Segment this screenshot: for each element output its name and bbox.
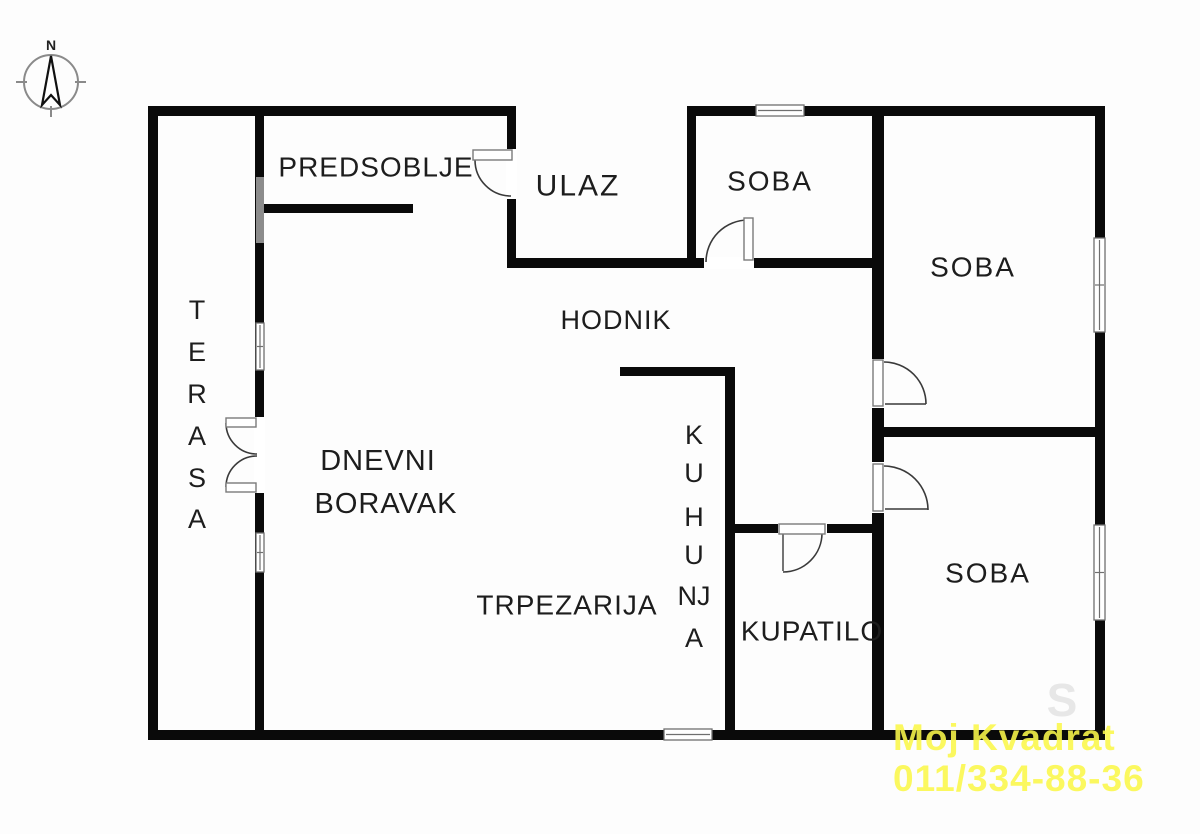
soba1-top-window (756, 105, 804, 116)
kitchen-right-wall (725, 367, 735, 740)
soba1-door (704, 218, 754, 269)
soba2-right-window (1094, 238, 1105, 332)
kitchen-top-wall (620, 367, 734, 376)
balcony-door-upper-leaf (226, 418, 256, 427)
soba3-door-swing-arc (884, 466, 928, 510)
label-kuhinja-letter: H (684, 502, 704, 532)
label-terasa-letter: A (188, 421, 206, 451)
terrace-window-lower (256, 533, 264, 572)
label-terasa-letter: E (188, 337, 206, 367)
label-dnevni: DNEVNI (320, 445, 436, 477)
bathroom-door (778, 523, 827, 572)
terrace-window-upper (256, 177, 264, 243)
entry-door (473, 149, 517, 199)
bathroom-door-leaf (779, 524, 825, 534)
label-terasa-letter: T (189, 295, 206, 325)
label-terasa-letter: S (188, 463, 206, 493)
soba2-door-leaf (873, 360, 883, 406)
label-kupatilo: KUPATILO (741, 616, 883, 647)
label-soba-2: SOBA (930, 252, 1016, 283)
floor-plan: SPREDSOBLJEULAZSOBASOBAHODNIKDNEVNIBORAV… (0, 0, 1200, 834)
left-outer-wall (148, 106, 158, 740)
label-terasa: TERASA (187, 295, 207, 534)
label-boravak: BORAVAK (315, 488, 458, 520)
watermark: Moj Kvadrat 011/334-88-36 (893, 717, 1145, 799)
watermark-brand: Moj Kvadrat (893, 717, 1145, 758)
predsoblje-wall (262, 204, 413, 213)
soba3-right-window (1094, 525, 1105, 620)
kitchen-bottom-window (664, 729, 712, 740)
label-kuhinja-letter: K (685, 420, 703, 450)
label-kuhinja-letter: NJ (678, 581, 711, 611)
right-outer-wall (1095, 106, 1105, 740)
balcony-door-upper (226, 417, 265, 493)
soba1-left-wall (687, 106, 696, 268)
soba2-door (871, 359, 926, 408)
soba3-door-leaf (873, 464, 883, 511)
label-terasa-letter: R (187, 379, 207, 409)
soba2-door-swing-arc (884, 362, 926, 404)
soba-divider-wall (872, 427, 1105, 437)
compass: N (16, 37, 86, 117)
label-kuhinja-letter: U (684, 540, 704, 570)
label-kuhinja-letter: A (685, 623, 703, 653)
entry-door-swing-arc (475, 160, 511, 196)
bathroom-door-swing-arc (783, 533, 822, 572)
label-soba-1: SOBA (727, 166, 813, 197)
label-kuhinja-letter: U (684, 458, 704, 488)
balcony-door-lower-leaf (226, 483, 256, 492)
label-trpezarija: TRPEZARIJA (476, 590, 657, 621)
north-needle-icon (42, 56, 60, 105)
watermark-phone: 011/334-88-36 (893, 758, 1145, 799)
terrace-window-mid (256, 323, 264, 370)
balcony-door-lower (226, 456, 257, 492)
label-kuhinja: KUHUNJA (678, 420, 711, 653)
label-ulaz: ULAZ (536, 170, 621, 203)
soba3-door (871, 462, 928, 513)
entry-door-leaf (473, 150, 512, 160)
label-predsoblje: PREDSOBLJE (278, 152, 473, 183)
soba1-door-swing-arc (706, 220, 748, 262)
top-wall-right (687, 106, 1105, 116)
label-terasa-letter: A (188, 504, 206, 534)
soba1-door-leaf (744, 218, 753, 260)
floorplan-canvas: SPREDSOBLJEULAZSOBASOBAHODNIKDNEVNIBORAV… (0, 0, 1200, 834)
label-hodnik: HODNIK (560, 305, 671, 335)
label-soba-3: SOBA (945, 558, 1031, 589)
compass-north-label: N (46, 37, 56, 53)
balcony-door-upper-opening (254, 417, 265, 493)
hall-top-wall (507, 258, 884, 268)
top-wall-left (148, 106, 515, 116)
